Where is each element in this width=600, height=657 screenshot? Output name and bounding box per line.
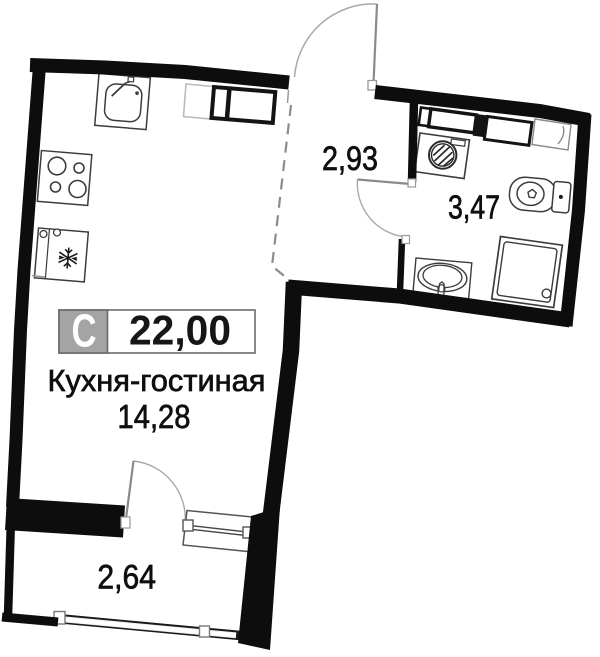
svg-text:3,47: 3,47: [448, 189, 500, 226]
svg-text:Кухня-гостиная: Кухня-гостиная: [48, 363, 266, 398]
svg-text:2,64: 2,64: [97, 559, 156, 597]
svg-text:С: С: [72, 305, 97, 357]
svg-text:2,93: 2,93: [322, 140, 378, 178]
svg-text:14,28: 14,28: [118, 398, 191, 435]
svg-text:22,00: 22,00: [129, 307, 231, 354]
